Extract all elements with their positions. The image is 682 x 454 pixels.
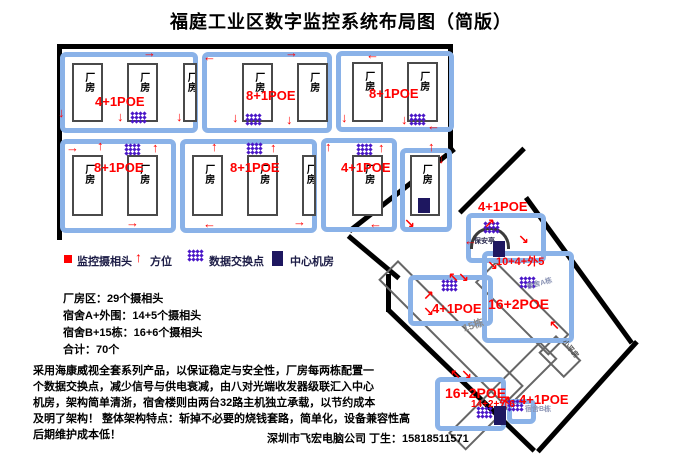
label-dorm-b: 宿舍B栋 <box>525 406 551 413</box>
stats-line: 合计：70个 <box>63 341 119 357</box>
arrow: ↘ <box>487 259 498 272</box>
arrow: → <box>143 46 156 59</box>
arrow: ← <box>427 119 440 132</box>
arrow: → <box>66 141 79 154</box>
switch-icon <box>246 114 261 125</box>
diagram-stage: 福庭工业区数字监控系统布局图（简版） 监控摄相头 方位 数据交换点 中心机房 厂… <box>0 0 682 454</box>
legend-label-server: 中心机房 <box>290 253 334 269</box>
arrow: → <box>285 46 298 59</box>
switch-icon <box>247 143 262 154</box>
switch-icon <box>125 144 140 155</box>
factory-building-label: 厂房 <box>307 65 318 120</box>
building: 厂房 <box>302 155 316 216</box>
page-title: 福庭工业区数字监控系统布局图（简版） <box>0 8 682 34</box>
arrow: → <box>126 216 139 229</box>
arrow: ← <box>464 234 477 247</box>
poe-label: 8+1POE <box>230 161 280 174</box>
dorm-b-server <box>494 406 506 425</box>
arrow: ↓ <box>58 106 65 119</box>
arrow: ↑ <box>270 141 277 154</box>
switch-icon <box>357 144 372 155</box>
poe-label: 4+1POE <box>95 95 145 108</box>
arrow: ← <box>366 48 379 61</box>
arrow: ↗ <box>423 289 434 302</box>
label-security: 保安亭 <box>474 238 495 245</box>
count-label: 10+4+外5 <box>496 257 544 268</box>
building: 厂房 <box>72 63 103 122</box>
arrow: ↓ <box>438 152 445 165</box>
poe-label: 4+1POE <box>519 393 569 406</box>
factory-building-label: 厂房 <box>82 65 93 120</box>
description-line: 个数据交换点，减少信号与供电衰减，由八对光端收发器级联汇入中心 <box>33 378 374 394</box>
poe-label: 8+1POE <box>246 89 296 102</box>
stats-line: 宿舍B+15栋：16+6个摄相头 <box>63 324 202 340</box>
poe-label: 8+1POE <box>94 161 144 174</box>
poe-label: 4+1POE <box>432 302 482 315</box>
arrow: ↑ <box>428 140 435 153</box>
legend-server-icon <box>272 251 283 266</box>
poe-label: 16+2POE <box>488 297 549 311</box>
building: 厂房 <box>183 63 197 122</box>
building: 厂房 <box>192 155 223 216</box>
switch-icon <box>410 114 425 125</box>
stats-line: 宿舍A+外围：14+5个摄相头 <box>63 307 201 323</box>
arrow: ← <box>203 217 216 230</box>
arrow: → <box>293 215 306 228</box>
arrow: ↖ <box>549 319 560 332</box>
switch-icon <box>131 112 146 123</box>
poe-label: 4+1POE <box>478 200 528 213</box>
arrow: ↑ <box>211 140 218 153</box>
arrow: ↑ <box>325 140 332 153</box>
arrow: ↗ <box>500 394 511 407</box>
arrow: ↑ <box>378 141 385 154</box>
poe-label: 16+2POE <box>445 386 506 400</box>
legend-label-switch: 数据交换点 <box>209 253 264 269</box>
arrow: ← <box>203 50 216 63</box>
arrow: ↘ <box>404 217 415 230</box>
legend-label-direction: 方位 <box>150 253 172 269</box>
arrow: ↓ <box>341 111 348 124</box>
factory-building-label: 厂房 <box>202 157 213 214</box>
central-server-room <box>418 198 430 213</box>
description-line: 机房，架构简单清浙，宿舍楼则由两台32路主机独立承载，以节约成本 <box>33 394 375 410</box>
legend-switch-icon <box>188 250 203 261</box>
description-line: 后期维护成本低！ <box>33 426 121 442</box>
legend-label-camera: 监控摄相头 <box>77 253 132 269</box>
arrow: ↓ <box>286 113 293 126</box>
arrow: ↖ <box>450 368 461 381</box>
factory-building-label: 厂房 <box>82 157 93 214</box>
legend-camera-icon <box>64 255 72 263</box>
arrow: ↑ <box>152 141 159 154</box>
arrow: ↓ <box>401 113 408 126</box>
poe-label: 4+1POE <box>341 161 391 174</box>
factory-building-label: 厂房 <box>185 65 196 120</box>
description-line: 及明了架构！ 整体架构特点：斩掉不必要的烧钱套路，简单化，设备兼容性高 <box>33 410 410 426</box>
arrow: ↓ <box>117 110 124 123</box>
arrow: ↓ <box>232 111 239 124</box>
factory-wall-top <box>57 44 453 49</box>
arrow: ↘ <box>461 368 472 381</box>
legend-direction-icon: ↑ <box>135 250 142 264</box>
building: 厂房 <box>297 63 328 122</box>
arrow: ↗ <box>484 217 495 230</box>
arrow: ↘ <box>423 305 434 318</box>
arrow: ↑ <box>97 139 104 152</box>
poe-label: 8+1POE <box>369 87 419 100</box>
arrow: ↘ <box>518 233 529 246</box>
factory-building-label: 厂房 <box>304 157 315 214</box>
description-line: 采用海康威视全套系列产品，以保证稳定与安全性，厂房每两栋配置一 <box>33 362 374 378</box>
arrow: ↓ <box>176 110 183 123</box>
stats-line: 厂房区：29个摄相头 <box>63 290 163 306</box>
company-contact: 深圳市飞宏电脑公司 丁生：15818511571 <box>267 430 469 446</box>
arrow: ← <box>369 217 382 230</box>
arrow: ↘ <box>458 271 469 284</box>
